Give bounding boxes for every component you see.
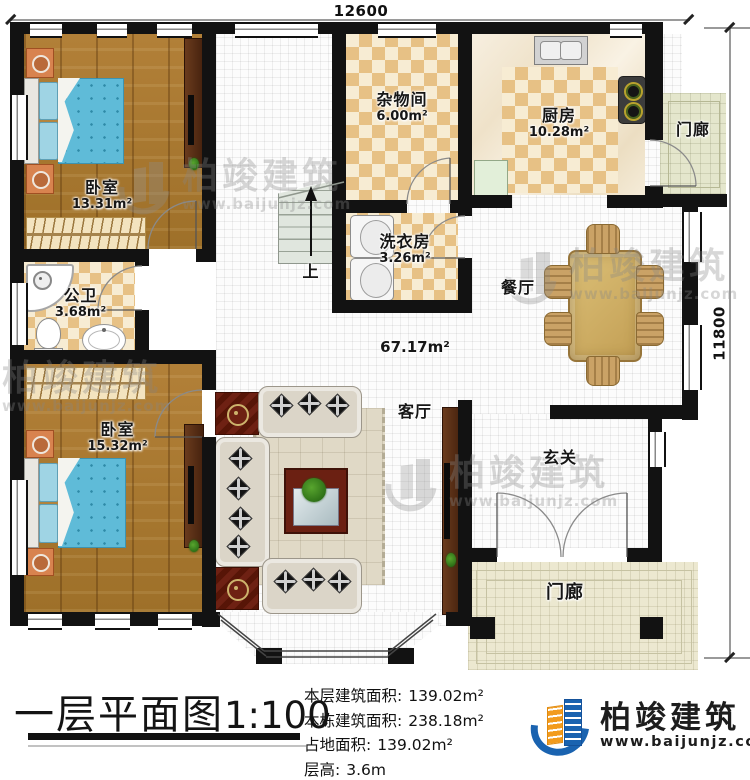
bedroom2-label: 卧室 15.32m² (50, 420, 185, 455)
lamp-icon (32, 436, 50, 454)
side-table (215, 392, 259, 435)
floor-plan-canvas: 卧室 13.31m² 杂物间 6.00m² 厨房 10.28m² 门廊 洗衣房 … (0, 0, 750, 780)
porch-pillar (470, 617, 495, 639)
monitor-icon (188, 95, 194, 145)
porch-pillar (640, 617, 663, 639)
wall (202, 437, 216, 626)
nightstand (26, 548, 54, 576)
stairs-up-label: 上 (296, 262, 326, 281)
window (95, 612, 130, 630)
dining-chair (586, 224, 620, 254)
desk (184, 38, 204, 168)
plan-title: 一层平面图1:100 (14, 682, 331, 740)
dimension-line-right (729, 28, 731, 658)
sofa (258, 386, 362, 438)
bedroom1-label: 卧室 13.31m² (24, 178, 180, 213)
foyer-floor (466, 414, 658, 548)
bay-window-jamb (446, 612, 472, 626)
dining-chair (636, 312, 664, 346)
washer-drum-icon (360, 263, 392, 298)
porch-bottom-label: 门廊 (520, 582, 610, 604)
plant-icon (189, 540, 199, 552)
wall (332, 300, 472, 313)
kitchen-sink (534, 36, 588, 65)
window (682, 325, 702, 390)
nightstand (26, 48, 54, 78)
sofa (215, 437, 270, 567)
dining-chair (544, 265, 572, 299)
porch-top-label: 门廊 (660, 120, 726, 139)
porch-top-border (668, 101, 720, 188)
plant-icon (302, 478, 326, 502)
wall (645, 194, 727, 207)
stat-row: 占地面积:139.02m² (304, 733, 484, 758)
wall (202, 364, 216, 390)
bay-window-jamb (202, 612, 220, 627)
window (235, 22, 318, 38)
bed (24, 78, 122, 162)
decor-icon (227, 579, 249, 601)
decor-icon (227, 404, 249, 426)
bed (24, 458, 124, 546)
dimension-top-value: 12600 (330, 2, 392, 19)
dining-chair (636, 265, 664, 299)
burner-icon (624, 102, 643, 121)
title-underline (28, 733, 300, 740)
dining-table (568, 250, 642, 362)
window (30, 22, 62, 38)
company-logo: 柏竣建筑 www.baijunjz.com (530, 694, 750, 758)
window (157, 22, 192, 38)
wardrobe (26, 217, 146, 252)
window (28, 612, 62, 630)
window (648, 432, 666, 467)
window (10, 95, 28, 160)
lamp-icon (32, 55, 50, 73)
wall (135, 249, 149, 266)
plant-icon (446, 553, 456, 567)
company-logo-icon (530, 694, 592, 758)
wall (550, 405, 698, 419)
window (610, 22, 642, 38)
bay-window-corner (256, 648, 282, 664)
wall (196, 249, 202, 262)
tv-cabinet (184, 424, 204, 548)
wall (458, 22, 472, 216)
company-name: 柏竣建筑 (600, 702, 750, 735)
bay-window-corner (388, 648, 414, 664)
dining-chair (586, 356, 620, 386)
sofa (262, 558, 362, 614)
living-label: 客厅 (385, 402, 445, 421)
title-underline-thin (28, 745, 306, 747)
tv-icon (444, 463, 450, 539)
wall (458, 400, 472, 612)
plan-title-text: 一层平面图 (14, 692, 224, 738)
dining-label: 餐厅 (488, 278, 548, 297)
foyer-label: 玄关 (530, 448, 590, 467)
plant-icon (189, 158, 199, 170)
tv-icon (188, 466, 194, 524)
wall (10, 350, 216, 364)
wall (645, 186, 663, 194)
refrigerator (474, 160, 508, 196)
wall (332, 200, 407, 213)
open-area-label: 67.17m² (375, 338, 455, 356)
window (378, 22, 436, 38)
building-stats: 本层建筑面积:139.02m² 本栋建筑面积:238.18m² 占地面积:139… (304, 684, 484, 780)
stat-row: 本层建筑面积:139.02m² (304, 684, 484, 709)
dimension-right-value: 11800 (711, 304, 728, 364)
burner-icon (624, 82, 643, 101)
lamp-icon (32, 554, 50, 572)
window (158, 612, 192, 630)
wall (627, 548, 658, 562)
wall (202, 22, 216, 262)
storage-label: 杂物间 6.00m² (346, 90, 458, 125)
wall (468, 548, 497, 562)
wardrobe (26, 367, 146, 400)
side-table (215, 567, 259, 610)
company-website: www.baijunjz.com (600, 734, 750, 750)
bathroom-label: 公卫 3.68m² (28, 286, 133, 321)
wall (10, 249, 148, 262)
window (682, 212, 702, 262)
window (10, 283, 28, 345)
wall (458, 195, 512, 208)
dining-chair (544, 312, 572, 346)
stat-row: 本栋建筑面积:238.18m² (304, 709, 484, 734)
window (10, 480, 28, 575)
wall (332, 22, 346, 313)
stat-row: 层高:3.6m (304, 758, 484, 780)
window (97, 22, 127, 38)
kitchen-label: 厨房 10.28m² (495, 106, 623, 141)
bay-window-floor (206, 612, 456, 664)
laundry-label: 洗衣房 3.26m² (352, 232, 458, 267)
